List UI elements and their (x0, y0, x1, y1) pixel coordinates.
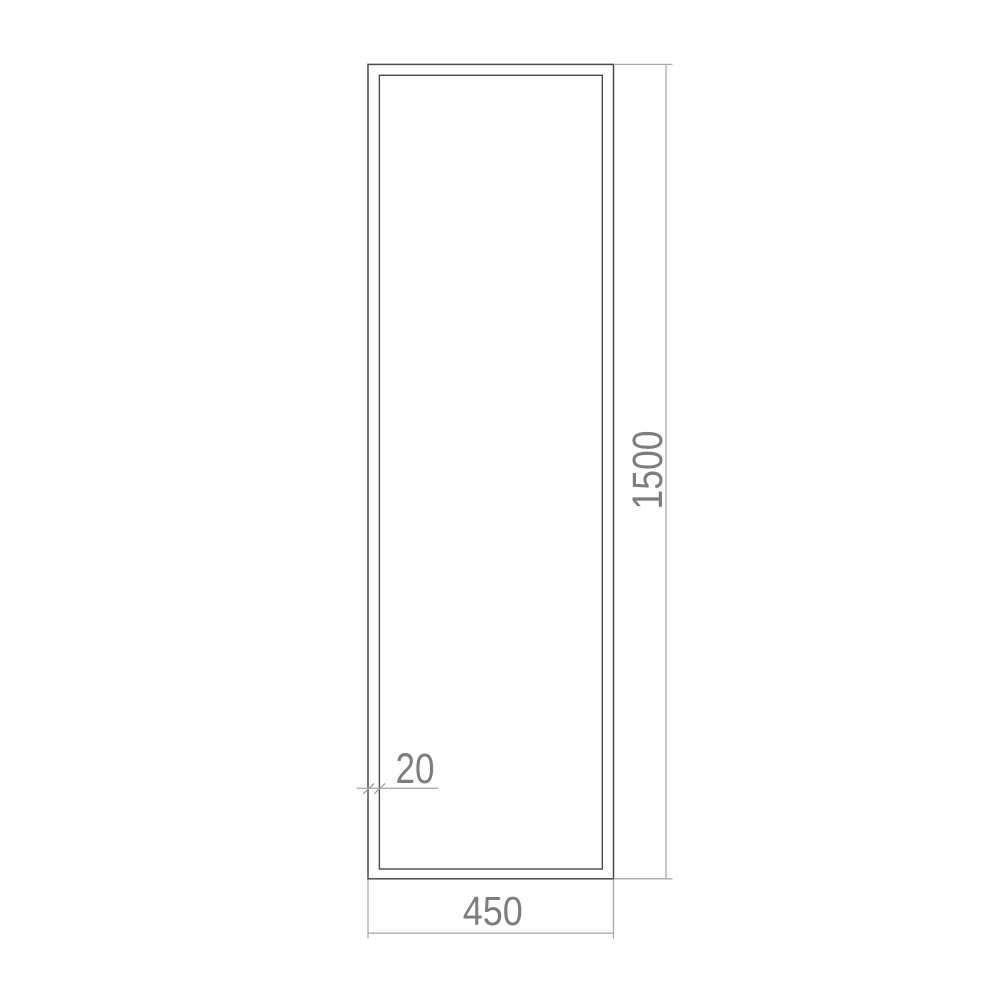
svg-text:20: 20 (396, 745, 435, 793)
svg-text:450: 450 (463, 888, 523, 934)
svg-text:1500: 1500 (624, 431, 672, 510)
